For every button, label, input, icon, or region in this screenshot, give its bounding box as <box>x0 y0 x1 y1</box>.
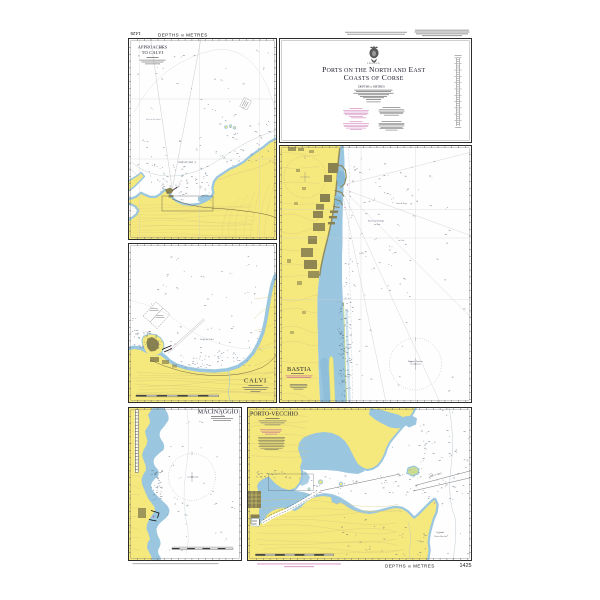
svg-text:Porto-Vecchio: Porto-Vecchio <box>433 535 448 538</box>
svg-text:Anse de Toga: Anse de Toga <box>395 202 407 205</box>
svg-text:BASTIA: BASTIA <box>287 366 311 373</box>
svg-text:TO CALVI: TO CALVI <box>142 50 164 55</box>
svg-text:see Note: see Note <box>398 239 404 242</box>
svg-text:DEPTHS in METRES: DEPTHS in METRES <box>158 32 208 37</box>
svg-text:Golfe de Calvi: Golfe de Calvi <box>178 161 193 164</box>
svg-text:Restricted Channel: Restricted Channel <box>367 220 384 223</box>
svg-text:MACINAGGIO: MACINAGGIO <box>198 410 239 416</box>
svg-text:1425: 1425 <box>130 31 141 36</box>
svg-text:1425: 1425 <box>460 563 472 569</box>
svg-text:Golfe de: Golfe de <box>436 531 444 534</box>
svg-text:DEPTHS in METRES: DEPTHS in METRES <box>385 564 435 569</box>
svg-text:DEPTHS in METRES: DEPTHS in METRES <box>358 85 385 89</box>
svg-text:Baie de Revellata: Baie de Revellata <box>146 118 161 121</box>
svg-text:Golfe de Calvi: Golfe de Calvi <box>200 338 214 341</box>
svg-text:CALVI: CALVI <box>244 378 267 385</box>
svg-text:see Note: see Note <box>374 223 380 226</box>
svg-text:PORTO-VECCHIO: PORTO-VECCHIO <box>250 412 299 418</box>
